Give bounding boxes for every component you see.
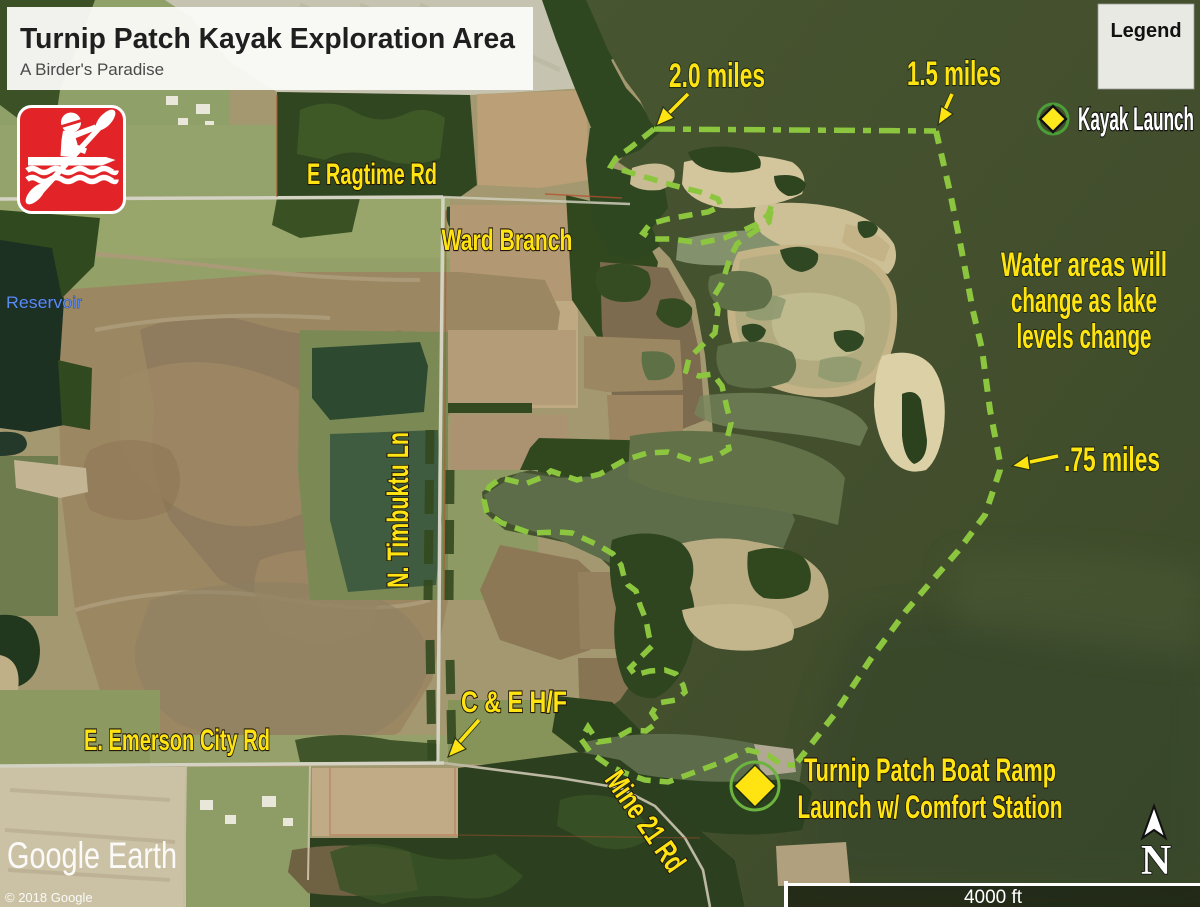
svg-text:A Birder's Paradise: A Birder's Paradise	[20, 60, 164, 79]
svg-text:E. Emerson City Rd: E. Emerson City Rd	[84, 724, 270, 757]
svg-text:.75 miles: .75 miles	[1064, 441, 1160, 479]
svg-text:Launch w/ Comfort Station: Launch w/ Comfort Station	[798, 789, 1063, 825]
svg-text:C & E H/F: C & E H/F	[461, 686, 567, 719]
svg-text:E Ragtime Rd: E Ragtime Rd	[307, 158, 437, 191]
svg-text:change as lake: change as lake	[1011, 282, 1157, 320]
svg-text:Legend: Legend	[1110, 20, 1181, 42]
svg-text:4000 ft: 4000 ft	[964, 887, 1023, 907]
svg-text:Reservoir: Reservoir	[6, 293, 82, 312]
svg-text:2.0 miles: 2.0 miles	[669, 57, 765, 95]
svg-text:Google Earth: Google Earth	[7, 835, 177, 876]
svg-text:levels change: levels change	[1017, 318, 1152, 356]
svg-text:Turnip Patch Kayak Exploration: Turnip Patch Kayak Exploration Area	[20, 23, 516, 55]
svg-text:N. Timbuktu Ln: N. Timbuktu Ln	[382, 432, 415, 588]
svg-text:Ward Branch: Ward Branch	[442, 224, 573, 257]
svg-text:1.5 miles: 1.5 miles	[907, 55, 1001, 93]
svg-text:© 2018 Google: © 2018 Google	[5, 890, 93, 905]
svg-text:Water areas will: Water areas will	[1001, 246, 1167, 284]
svg-text:N: N	[1141, 838, 1171, 884]
svg-text:Kayak Launch: Kayak Launch	[1078, 101, 1194, 137]
svg-text:Turnip Patch Boat Ramp: Turnip Patch Boat Ramp	[804, 752, 1056, 788]
